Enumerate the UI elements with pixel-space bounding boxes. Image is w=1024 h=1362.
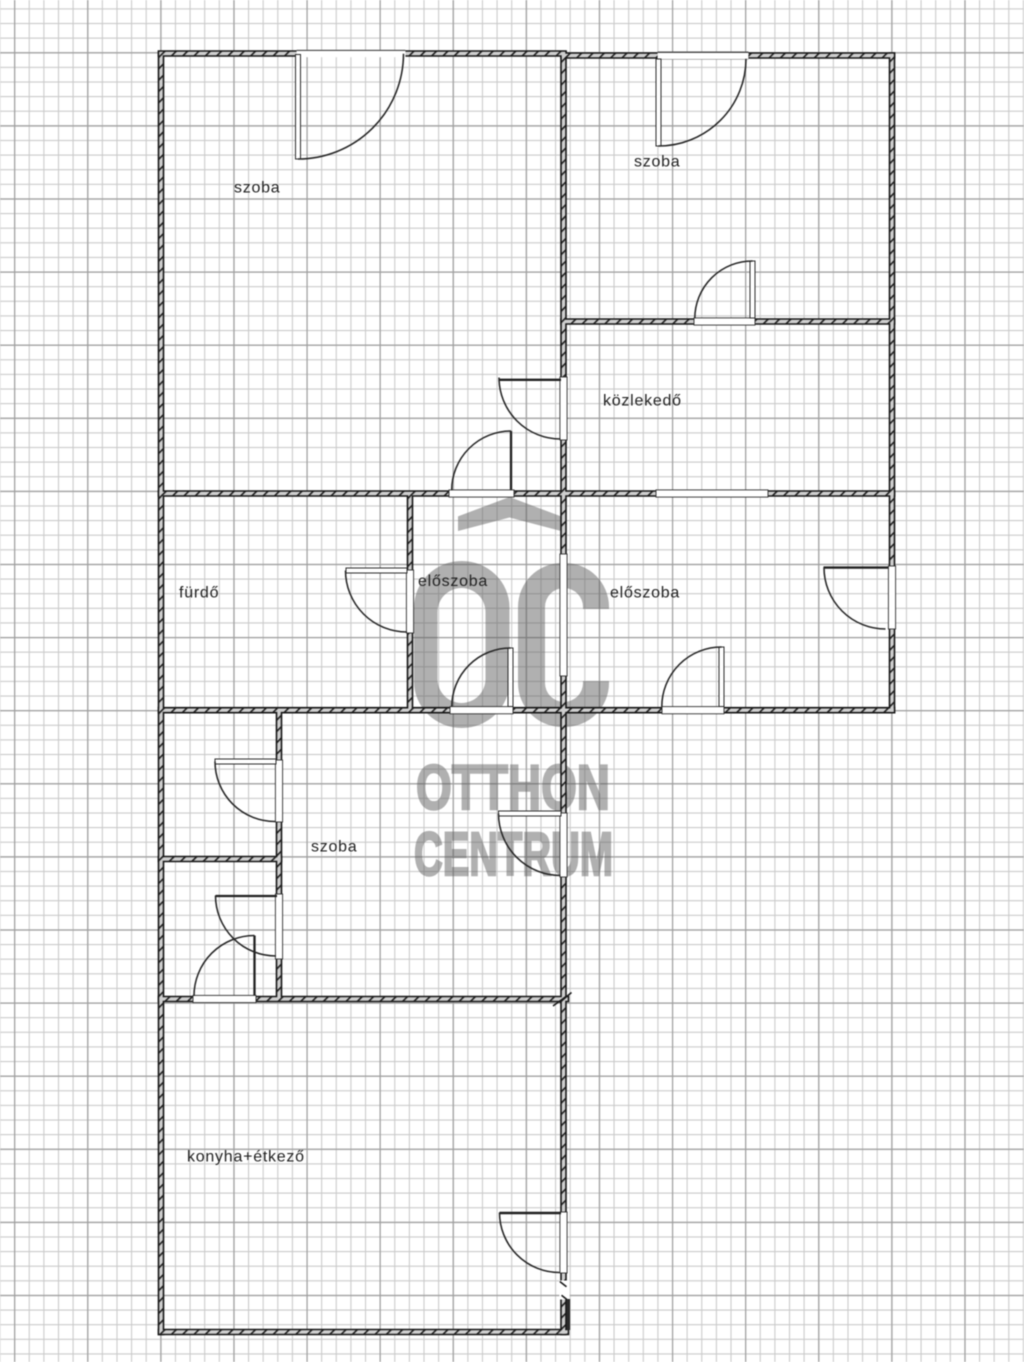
svg-text:szoba: szoba (311, 839, 357, 856)
svg-text:fürdő: fürdő (179, 585, 219, 602)
svg-text:szoba: szoba (634, 154, 680, 171)
svg-text:közlekedő: közlekedő (603, 393, 682, 410)
svg-text:előszoba: előszoba (610, 585, 680, 602)
svg-text:előszoba: előszoba (418, 573, 488, 590)
svg-text:szoba: szoba (234, 180, 280, 197)
svg-text:konyha+étkező: konyha+étkező (187, 1149, 305, 1166)
